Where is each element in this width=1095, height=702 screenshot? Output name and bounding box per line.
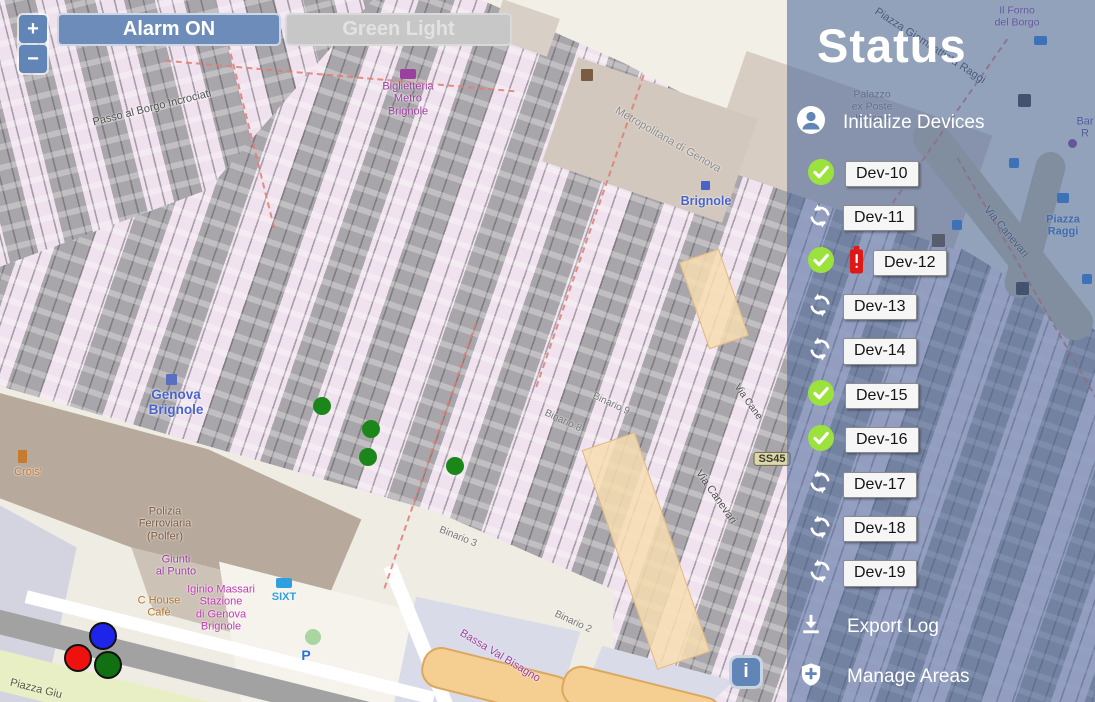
device-status-syncing-icon	[808, 515, 832, 544]
device-row-dev-12[interactable]: Dev-12	[787, 250, 1095, 276]
metro-icon	[400, 69, 416, 79]
device-marker[interactable]	[359, 448, 377, 466]
car-rental-icon	[276, 578, 292, 588]
device-label[interactable]: Dev-12	[873, 250, 947, 276]
zoom-out-button[interactable]: −	[19, 45, 47, 73]
device-label[interactable]: Dev-17	[843, 472, 917, 498]
person-icon	[797, 106, 825, 139]
device-row-dev-11[interactable]: Dev-11	[787, 205, 1095, 231]
device-marker[interactable]	[362, 420, 380, 438]
device-status-ok-icon	[808, 159, 834, 190]
device-status-syncing-icon	[808, 470, 832, 499]
device-row-dev-18[interactable]: Dev-18	[787, 516, 1095, 542]
device-row-dev-10[interactable]: Dev-10	[787, 161, 1095, 187]
device-label[interactable]: Dev-16	[845, 427, 919, 453]
zoom-control: + −	[17, 13, 49, 75]
export-log-button[interactable]: Export Log	[800, 612, 939, 641]
poi-marker[interactable]	[89, 622, 117, 650]
poi-marker[interactable]	[64, 644, 92, 672]
green-light-button[interactable]: Green Light	[285, 13, 512, 46]
device-label[interactable]: Dev-14	[843, 338, 917, 364]
device-status-syncing-icon	[808, 337, 832, 366]
zoom-in-button[interactable]: +	[19, 15, 47, 43]
bar-goblet-icon	[18, 450, 27, 463]
device-label[interactable]: Dev-18	[843, 516, 917, 542]
status-panel: Status Initialize Devices Dev-10Dev-11De…	[787, 0, 1095, 702]
device-row-dev-14[interactable]: Dev-14	[787, 339, 1095, 365]
tree-area-icon	[305, 629, 321, 645]
device-label[interactable]: Dev-10	[845, 161, 919, 187]
device-marker[interactable]	[446, 457, 464, 475]
manage-areas-button[interactable]: Manage Areas	[800, 662, 970, 692]
luggage-cart-icon	[581, 69, 593, 81]
device-status-ok-icon	[808, 425, 834, 456]
device-status-ok-icon	[808, 380, 834, 411]
low-battery-icon	[850, 246, 863, 279]
station-square-icon	[166, 374, 177, 385]
device-status-syncing-icon	[808, 293, 832, 322]
device-label[interactable]: Dev-15	[845, 383, 919, 409]
initialize-devices-button[interactable]: Initialize Devices	[797, 106, 985, 139]
manage-areas-label: Manage Areas	[847, 666, 970, 688]
device-row-dev-17[interactable]: Dev-17	[787, 472, 1095, 498]
poi-marker[interactable]	[94, 651, 122, 679]
device-row-dev-13[interactable]: Dev-13	[787, 294, 1095, 320]
initialize-devices-label: Initialize Devices	[843, 112, 985, 134]
device-label[interactable]: Dev-19	[843, 560, 917, 586]
device-row-dev-16[interactable]: Dev-16	[787, 427, 1095, 453]
info-button[interactable]: i	[729, 655, 763, 689]
station-square-icon	[701, 181, 710, 190]
device-label[interactable]: Dev-11	[843, 205, 915, 231]
device-label[interactable]: Dev-13	[843, 294, 917, 320]
download-icon	[800, 612, 822, 641]
app: Passo al Borgo IncrociatiBiglietteria Me…	[0, 0, 1095, 702]
panel-title: Status	[817, 18, 967, 73]
device-marker[interactable]	[313, 397, 331, 415]
device-status-syncing-icon	[808, 204, 832, 233]
export-log-label: Export Log	[847, 616, 939, 638]
device-list: Dev-10Dev-11Dev-12Dev-13Dev-14Dev-15Dev-…	[787, 161, 1095, 605]
device-row-dev-19[interactable]: Dev-19	[787, 561, 1095, 587]
device-status-syncing-icon	[808, 559, 832, 588]
shield-plus-icon	[800, 662, 822, 692]
device-status-ok-icon	[808, 247, 834, 278]
alarm-on-button[interactable]: Alarm ON	[57, 13, 281, 46]
device-row-dev-15[interactable]: Dev-15	[787, 383, 1095, 409]
